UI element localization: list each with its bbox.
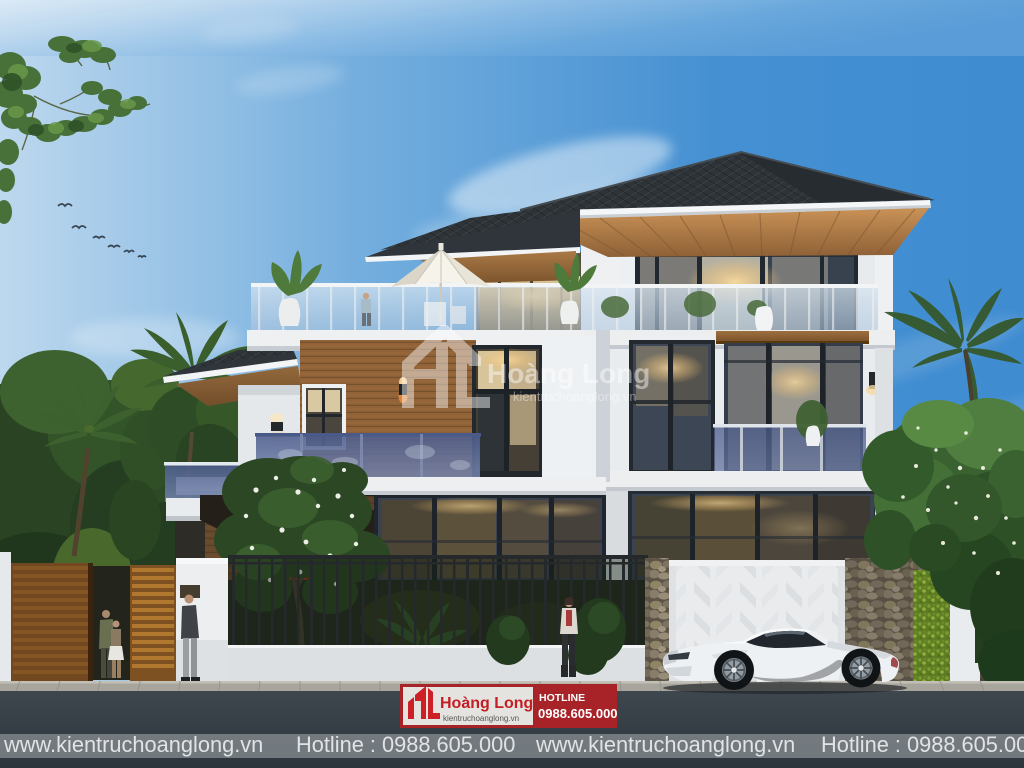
- svg-text:kientruchoanglong.vn: kientruchoanglong.vn: [513, 389, 637, 404]
- svg-text:Hotline : 0988.605.000: Hotline : 0988.605.000: [821, 732, 1024, 757]
- svg-text:kientruchoanglong.vn: kientruchoanglong.vn: [443, 714, 519, 723]
- svg-text:www.kientruchoanglong.vn: www.kientruchoanglong.vn: [535, 732, 795, 757]
- svg-text:Hotline : 0988.605.000: Hotline : 0988.605.000: [296, 732, 515, 757]
- svg-text:Hoàng Long: Hoàng Long: [487, 358, 650, 389]
- svg-text:HOTLINE: HOTLINE: [539, 692, 585, 704]
- svg-text:Hoàng Long: Hoàng Long: [440, 695, 533, 712]
- svg-text:0988.605.000: 0988.605.000: [538, 706, 618, 721]
- svg-text:www.kientruchoanglong.vn: www.kientruchoanglong.vn: [3, 732, 263, 757]
